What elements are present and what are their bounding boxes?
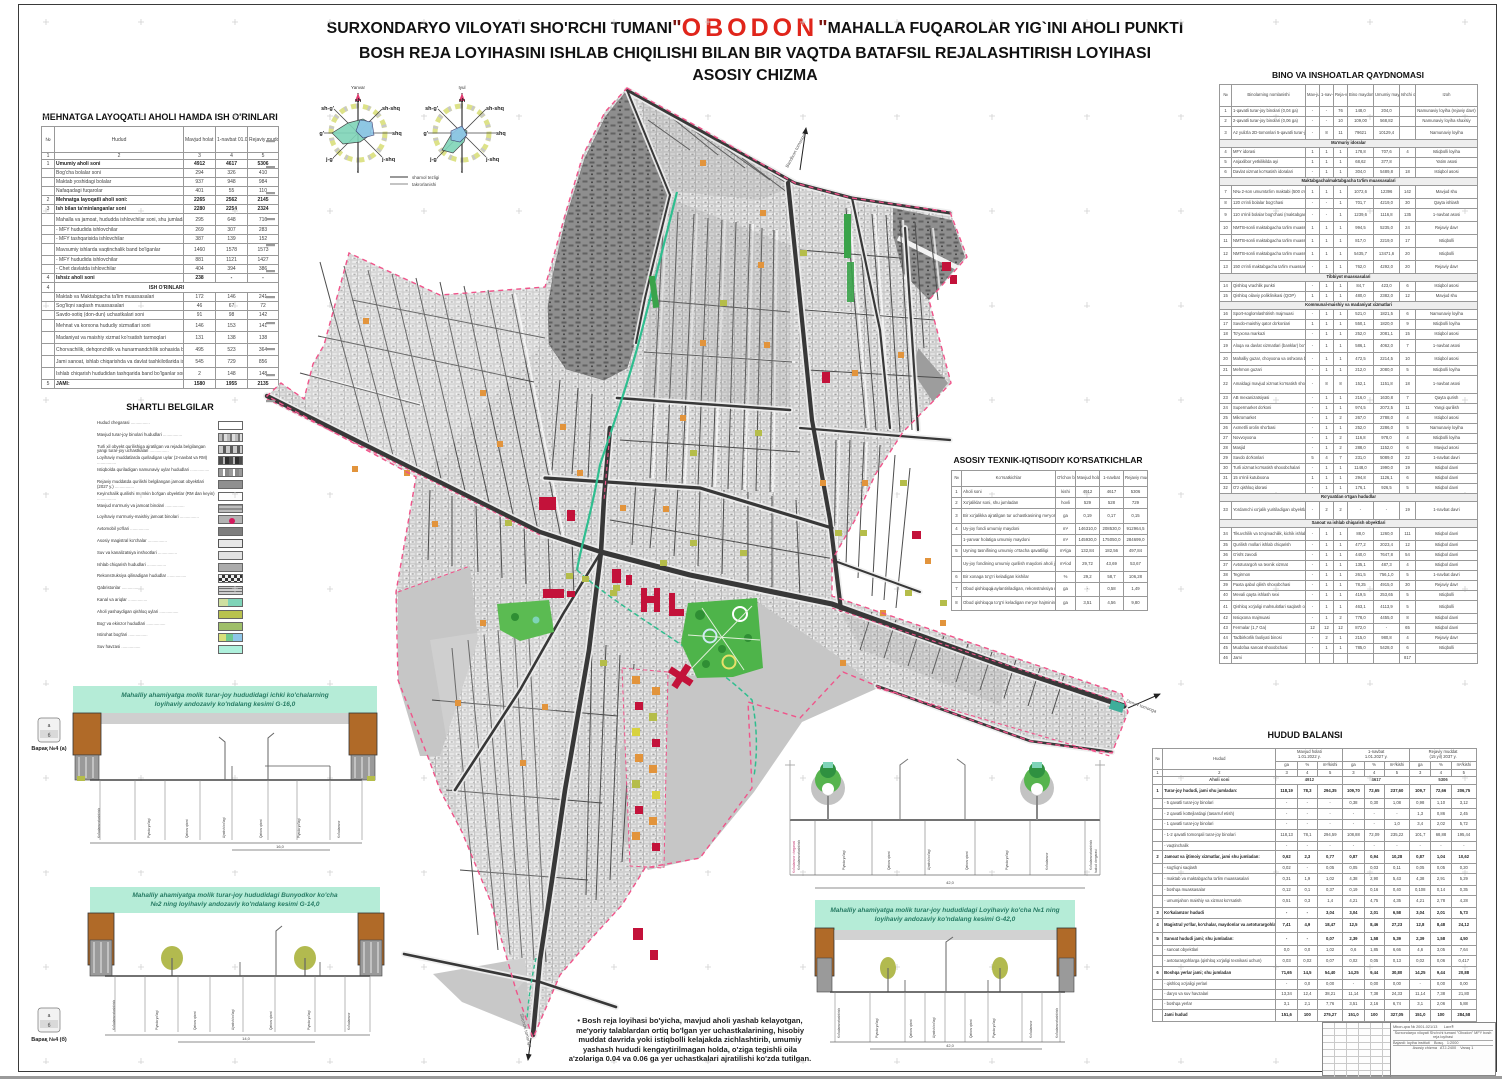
- svg-text:б: б: [48, 1023, 51, 1029]
- svg-text:42,0: 42,0: [946, 1043, 955, 1048]
- svg-text:Piyoda yo'lagi: Piyoda yo'lagi: [155, 1010, 159, 1030]
- svg-text:Piyoda yo'lagi: Piyoda yo'lagi: [842, 850, 846, 870]
- svg-text:Ko'kalamzorlashtirish: Ko'kalamzorlashtirish: [112, 1000, 116, 1030]
- svg-text:Ko'kalamzorlashtirish: Ko'kalamzorlashtirish: [97, 808, 101, 838]
- svg-text:Ajratish bo'lagi: Ajratish bo'lagi: [231, 1009, 235, 1030]
- svg-text:Piyoda yo'lagi: Piyoda yo'lagi: [875, 1018, 879, 1038]
- svg-text:16,0: 16,0: [276, 844, 285, 849]
- svg-text:Piyoda yo'lagi: Piyoda yo'lagi: [307, 1010, 311, 1030]
- svg-text:Ajratish bo'lagi: Ajratish bo'lagi: [927, 849, 931, 870]
- svg-text:Piyoda yo'lagi: Piyoda yo'lagi: [992, 1018, 996, 1038]
- svg-text:Qatnov qismi: Qatnov qismi: [185, 819, 189, 838]
- svg-text:loyihaviy andozaviy ko'ndalang: loyihaviy andozaviy ko'ndalang kesimi G-…: [875, 916, 1016, 923]
- svg-text:Ko'kalamzor: Ko'kalamzor: [337, 820, 341, 838]
- svg-text:Mahalliy ahamiyatga molik tura: Mahalliy ahamiyatga molik turar-joy hudu…: [121, 692, 328, 699]
- svg-text:б: б: [48, 733, 51, 739]
- svg-text:Ko'kalamzor: Ko'kalamzor: [347, 1012, 351, 1030]
- svg-text:a: a: [48, 723, 51, 729]
- svg-text:Qatnov qismi: Qatnov qismi: [965, 851, 969, 870]
- svg-text:Ko'kalamzorlashtirish: Ko'kalamzorlashtirish: [1055, 1008, 1059, 1038]
- svg-text:Qatnov qismi: Qatnov qismi: [193, 1011, 197, 1030]
- svg-text:Qatnov qismi: Qatnov qismi: [259, 819, 263, 838]
- svg-text:loyihaviy andozaviy ko'ndalang: loyihaviy andozaviy ko'ndalang kesimi G-…: [155, 701, 296, 708]
- svg-text:hudud chegarasi: hudud chegarasi: [1094, 849, 1098, 873]
- svg-text:a: a: [48, 1013, 51, 1019]
- svg-text:Ko'kalamzorlashtirish: Ko'kalamzorlashtirish: [837, 1008, 841, 1038]
- svg-text:Mahalliy ahamiyatga molik tura: Mahalliy ahamiyatga molik turar-joy hudu…: [132, 892, 338, 899]
- svg-text:Piyoda yo'lagi: Piyoda yo'lagi: [297, 818, 301, 838]
- svg-text:Варақ №4 (б): Варақ №4 (б): [31, 1036, 67, 1043]
- svg-text:Qatnov qismi: Qatnov qismi: [269, 1011, 273, 1030]
- svg-text:Ko'kalamzor chegarasi: Ko'kalamzor chegarasi: [792, 841, 796, 873]
- svg-text:Qatnov qismi: Qatnov qismi: [887, 851, 891, 870]
- svg-text:Piyoda yo'lagi: Piyoda yo'lagi: [147, 818, 151, 838]
- svg-text:Ko'kalamzor: Ko'kalamzor: [1045, 852, 1049, 870]
- svg-text:Qatnov qismi: Qatnov qismi: [969, 1019, 973, 1038]
- svg-text:14,0: 14,0: [242, 1036, 251, 1041]
- svg-text:42,0: 42,0: [946, 880, 955, 885]
- svg-text:Ko'kalamzor: Ko'kalamzor: [1029, 1020, 1033, 1038]
- svg-text:Qatnov qismi: Qatnov qismi: [909, 1019, 913, 1038]
- svg-text:Варақ №4 (а): Варақ №4 (а): [31, 746, 66, 752]
- svg-text:Ajratish bo'lagi: Ajratish bo'lagi: [222, 817, 226, 838]
- svg-text:№2 ning loyihaviy andozaviy ko: №2 ning loyihaviy andozaviy ko'ndalang k…: [150, 901, 319, 908]
- svg-text:Ko'kalamzorlashtirish: Ko'kalamzorlashtirish: [1089, 840, 1093, 870]
- svg-text:Ko'kalamzorlashtirish: Ko'kalamzorlashtirish: [797, 840, 801, 870]
- svg-text:Mahalliy ahamiyatga molik tura: Mahalliy ahamiyatga molik turar-joy hudu…: [830, 907, 1059, 914]
- svg-text:Piyoda yo'lagi: Piyoda yo'lagi: [1005, 850, 1009, 870]
- svg-text:Ajratish bo'lagi: Ajratish bo'lagi: [932, 1017, 936, 1038]
